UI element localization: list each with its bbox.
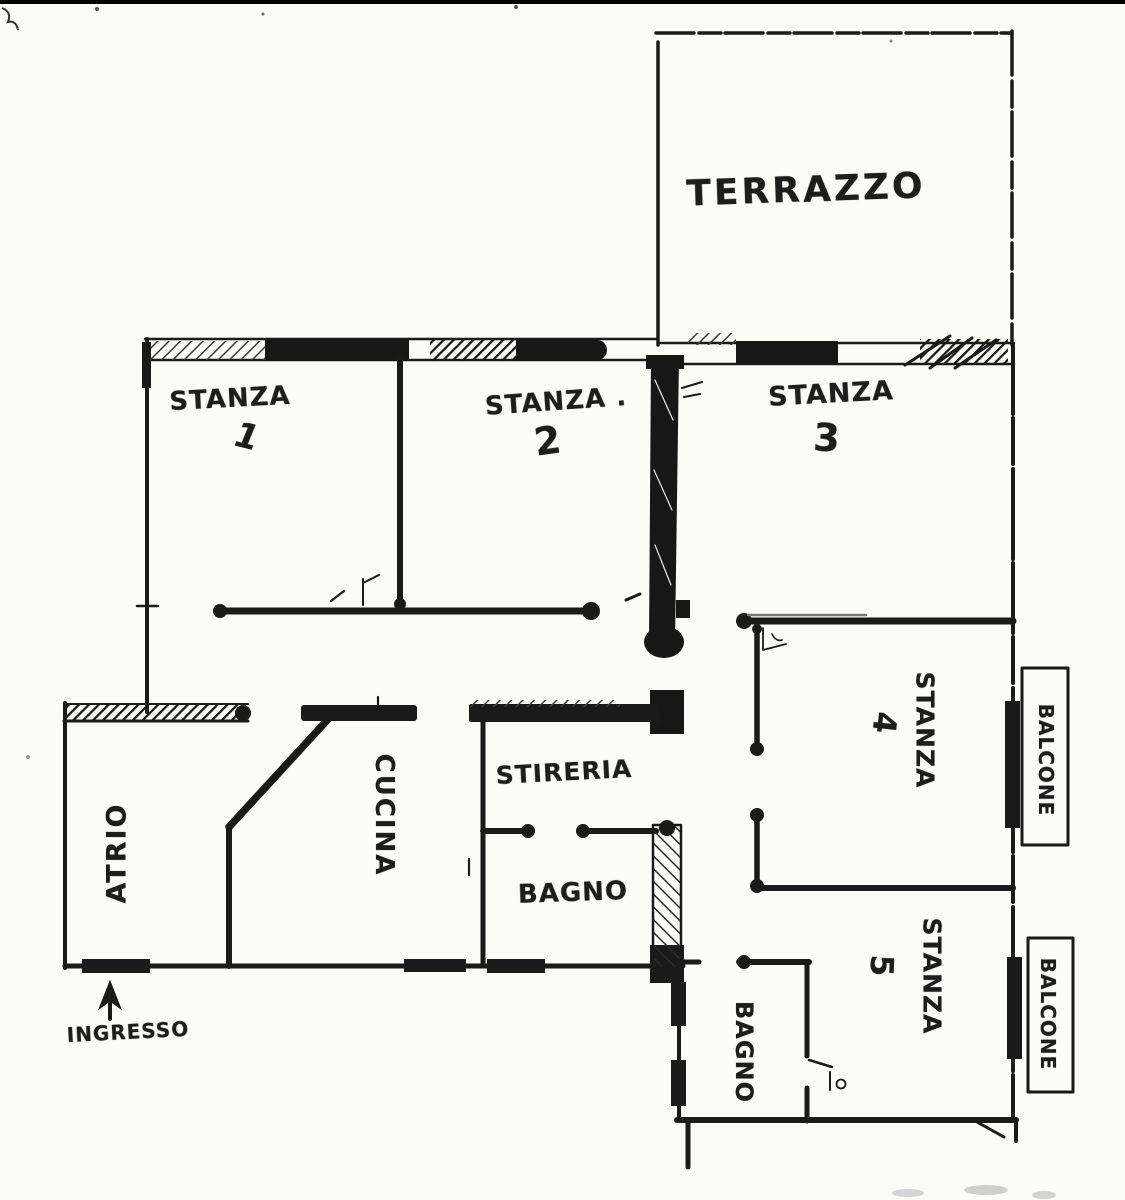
room-number-stanza-4: 4 [865, 710, 903, 736]
room-label-atrio: ATRIO [102, 802, 133, 903]
room-number-stanza-5: 5 [863, 954, 900, 978]
room-label-stanza-4: STANZA [911, 672, 940, 789]
room-number-stanza-2: 2 [531, 417, 564, 464]
room-label-balcone-2: BALCONE [1036, 958, 1060, 1071]
room-label-stanza-3: STANZA [767, 375, 894, 413]
room-label-balcone-1: BALCONE [1034, 704, 1058, 817]
room-label-cucina: CUCINA [369, 754, 399, 877]
room-label-stanza-1: STANZA [169, 381, 292, 417]
room-label-terrazzo: TERRAZZO [686, 165, 927, 214]
floorplan-page: TERRAZZO STANZA 1 STANZA . 2 STANZA 3 ST… [0, 0, 1125, 1200]
entrance-arrow-icon [99, 981, 121, 1019]
room-label-bagno-1: BAGNO [517, 876, 628, 910]
door-marks [137, 382, 846, 1090]
room-number-stanza-3: 3 [812, 415, 842, 460]
room-label-bagno-2: BAGNO [730, 1001, 758, 1103]
room-label-stanza-5: STANZA [918, 918, 947, 1035]
